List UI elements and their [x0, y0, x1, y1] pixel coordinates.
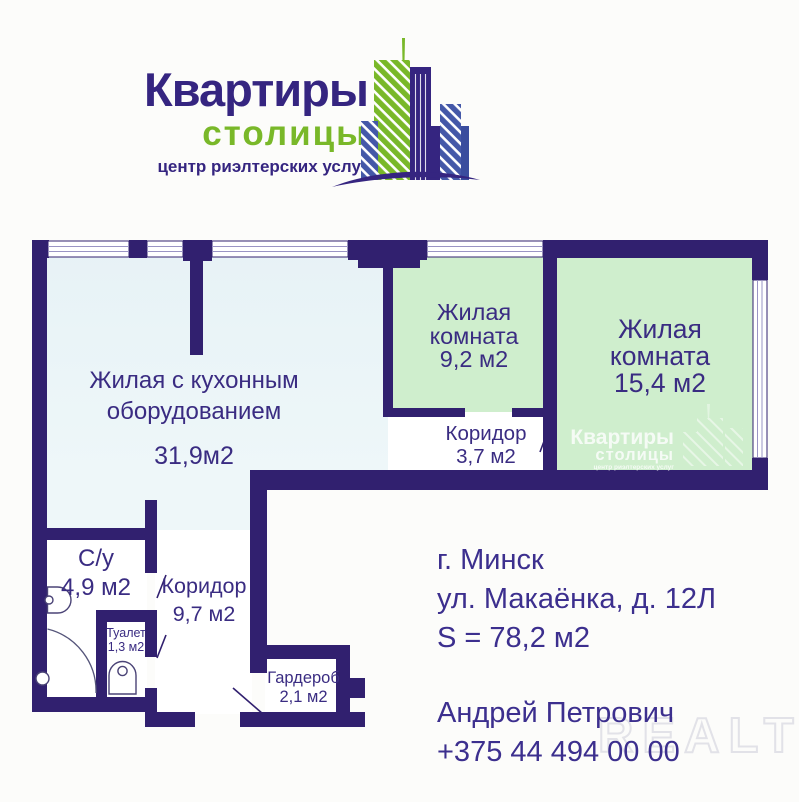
wall-wardrobe-notch: [350, 678, 365, 698]
brand-watermark-title: Квартиры: [556, 427, 674, 448]
room-name: Жилая комната: [398, 301, 550, 348]
wall-top-corner: [32, 240, 49, 258]
room-name: Коридор: [420, 422, 552, 445]
room-area: 2,1 м2: [261, 688, 346, 707]
room-area: 3,7 м2: [420, 445, 552, 468]
room-name: Коридор: [147, 572, 261, 600]
label-wc: Туалет 1,3 м2: [97, 627, 155, 654]
wall-top-pillar1: [129, 240, 147, 258]
wall-left-outer: [32, 240, 47, 712]
window-4: [427, 241, 543, 257]
street-line: ул. Макаёнка, д. 12Л: [437, 580, 716, 619]
room-name: Туалет: [97, 627, 155, 641]
wall-bath-bottom: [32, 697, 157, 712]
wall-bath-top: [32, 528, 155, 540]
wall-right-top-corner: [752, 240, 768, 280]
brand-watermark-text: Квартиры столицы центр риэлтерских услуг: [556, 427, 674, 471]
agent-phone: +375 44 494 00 00: [437, 733, 716, 772]
label-hall-3-7: Коридор 3,7 м2: [420, 422, 552, 468]
room-area: 9,2 м2: [398, 348, 550, 372]
room-area: 9,7 м2: [147, 600, 261, 628]
room-name: С/у: [44, 544, 148, 573]
label-room-9-2: Жилая комната 9,2 м2: [398, 301, 550, 372]
wall-living-room1: [383, 258, 393, 417]
label-living-room: Жилая с кухонным оборудованием 31,9м2: [83, 365, 305, 472]
brand-watermark-subtitle: столицы: [556, 447, 674, 464]
label-wardrobe: Гардероб 2,1 м2: [261, 669, 346, 707]
window-right: [753, 280, 767, 458]
wall-wardrobe-bottom: [240, 712, 365, 727]
wall-top-pillar2: [183, 240, 212, 261]
wall-top-right: [543, 240, 768, 258]
listing-details: г. Минск ул. Макаёнка, д. 12Л S = 78,2 м…: [437, 541, 716, 772]
room-area: 31,9м2: [83, 441, 305, 472]
room-name: Гардероб: [261, 669, 346, 688]
room-name: Жилая с кухонным оборудованием: [83, 365, 305, 427]
agent-name: Андрей Петрович: [437, 694, 716, 733]
label-room-15-4: Жилая комната 15,4 м2: [572, 316, 748, 397]
wall-band-bottom: [250, 470, 768, 490]
wall-hall2-bottom: [145, 712, 195, 727]
room-area: 1,3 м2: [97, 641, 155, 655]
wall-room1-bottom-a: [383, 408, 465, 417]
wall-top-block: [348, 240, 427, 260]
window-1: [48, 241, 129, 257]
drain-circle-icon: [36, 672, 49, 685]
label-bathroom: С/у 4,9 м2: [44, 544, 148, 602]
toilet-button-icon: [118, 666, 127, 675]
wall-hanging: [190, 258, 203, 355]
room-area: 15,4 м2: [572, 370, 748, 397]
spacer: [437, 658, 716, 694]
room-area: 4,9 м2: [44, 573, 148, 602]
total-area-line: S = 78,2 м2: [437, 619, 716, 658]
label-hall-9-7: Коридор 9,7 м2: [147, 572, 261, 628]
window-3: [212, 241, 348, 257]
city-line: г. Минск: [437, 541, 716, 580]
flyer-page: Квартиры столицы центр риэлтерских услуг: [0, 0, 799, 802]
room-name: Жилая комната: [572, 316, 748, 370]
brand-watermark-tagline: центр риэлтерских услуг: [556, 465, 674, 472]
window-2: [147, 241, 183, 257]
